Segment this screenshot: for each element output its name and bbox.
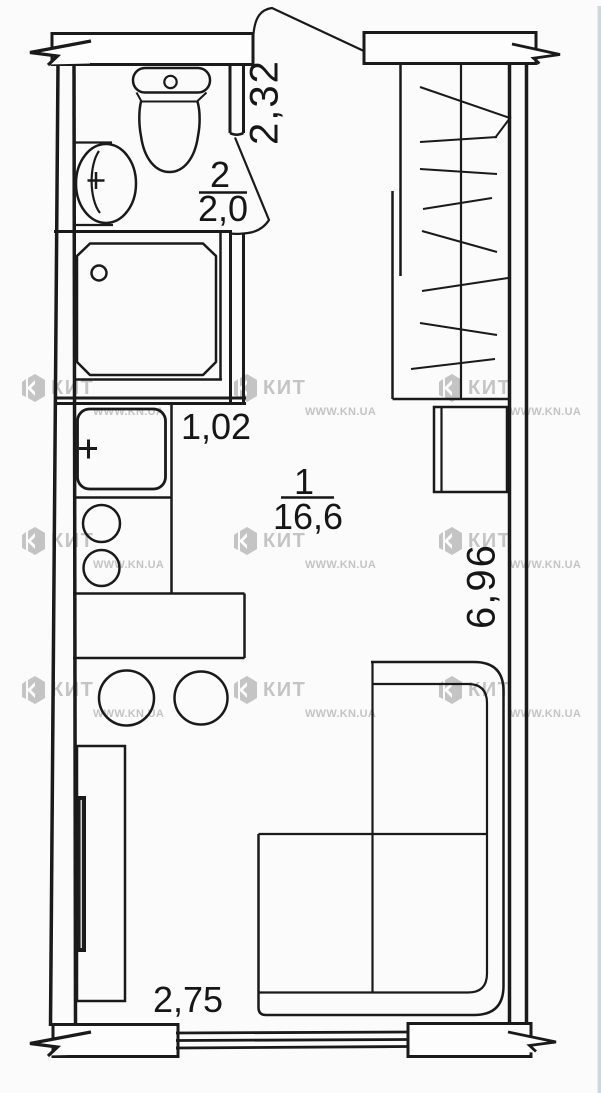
svg-text:6,96: 6,96 bbox=[460, 543, 504, 629]
svg-text:КИТ: КИТ bbox=[263, 679, 306, 701]
svg-text:КИТ: КИТ bbox=[263, 377, 306, 399]
svg-text:WWW.KN.UA: WWW.KN.UA bbox=[305, 406, 376, 418]
svg-text:WWW.KN.UA: WWW.KN.UA bbox=[305, 708, 376, 720]
svg-text:2,32: 2,32 bbox=[243, 59, 287, 145]
svg-text:КИТ: КИТ bbox=[468, 679, 511, 701]
svg-text:1,02: 1,02 bbox=[181, 406, 251, 447]
svg-text:WWW.KN.UA: WWW.KN.UA bbox=[510, 708, 581, 720]
svg-text:WWW.KN.UA: WWW.KN.UA bbox=[93, 559, 164, 571]
svg-text:КИТ: КИТ bbox=[51, 679, 94, 701]
svg-text:2,75: 2,75 bbox=[153, 979, 223, 1020]
svg-text:16,6: 16,6 bbox=[273, 496, 343, 537]
svg-text:КИТ: КИТ bbox=[468, 377, 511, 399]
svg-text:WWW.KN.UA: WWW.KN.UA bbox=[510, 406, 581, 418]
svg-text:WWW.KN.UA: WWW.KN.UA bbox=[510, 559, 581, 571]
svg-text:2,0: 2,0 bbox=[198, 188, 248, 229]
svg-text:КИТ: КИТ bbox=[51, 530, 94, 552]
svg-text:WWW.KN.UA: WWW.KN.UA bbox=[305, 559, 376, 571]
